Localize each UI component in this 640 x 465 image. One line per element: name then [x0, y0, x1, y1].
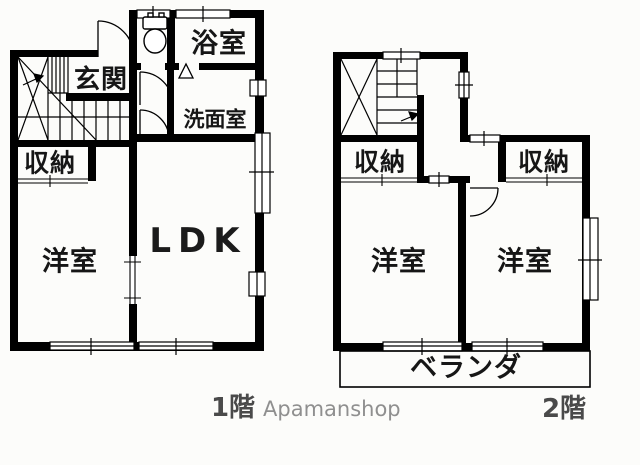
- f2-wall-mid-c: [500, 135, 590, 142]
- stairs-down-arrow-head: [409, 112, 418, 120]
- watermark-apamanshop: Apamanshop: [263, 399, 401, 420]
- caption-floor1: 1階: [211, 395, 255, 421]
- toilet-tank-knob: [159, 13, 164, 17]
- toilet-bowl: [144, 29, 166, 53]
- f1-wall-ldk-top: [129, 134, 263, 142]
- f2-wall-stairs-hall: [417, 95, 424, 180]
- label-bathroom: 浴室: [191, 31, 247, 58]
- f2-wall-mid-b: [460, 135, 470, 142]
- label-bedroom-f2-right: 洋室: [497, 249, 553, 276]
- caption-floor2: 2階: [542, 396, 586, 422]
- f2-wall-top-a: [333, 52, 383, 59]
- stairs-up-arrow-head: [34, 74, 43, 82]
- toilet-tank: [143, 17, 167, 29]
- floor2-stairs: [341, 59, 418, 135]
- f1-wall-top-left: [10, 50, 98, 57]
- f2-wall-upper-right-a: [460, 52, 468, 72]
- f1-wall-left: [10, 50, 18, 351]
- floor1-toilet-icon: [143, 13, 167, 53]
- floorplan-canvas: 玄関 浴室 洗面室 収納 洋室 LDK 収納 収納 洋室 洋室 ベランダ 1階 …: [0, 0, 640, 465]
- f1-wall-ldk-bedroom-a: [129, 142, 137, 258]
- f1-wall-bath-bottom: [199, 63, 263, 70]
- front-door-arc: [98, 21, 134, 57]
- f1-wall-storage-right: [88, 147, 96, 181]
- label-storage-f2-left: 収納: [354, 150, 406, 175]
- label-washroom: 洗面室: [184, 110, 247, 131]
- f2-wall-storageR-left: [498, 142, 506, 182]
- floor1-sliding-doors: [14, 175, 141, 304]
- bath-door-mark: [179, 64, 193, 78]
- f2-wall-room-divider: [458, 182, 466, 343]
- toilet-tank-knob: [148, 13, 153, 17]
- label-storage-f2-right: 収納: [518, 150, 570, 175]
- label-ldk: LDK: [149, 224, 246, 258]
- label-veranda: ベランダ: [410, 355, 522, 382]
- f2-wall-left: [333, 52, 341, 351]
- label-bedroom-f2-left: 洋室: [371, 249, 427, 276]
- f2-wall-mid-a: [333, 135, 424, 142]
- label-entrance: 玄関: [74, 67, 128, 93]
- f1-wall-toilet-bottom-a: [129, 63, 141, 70]
- f2-window-hall: [470, 135, 500, 142]
- label-bedroom-f1: 洋室: [42, 249, 98, 276]
- f2-hall-door-arc: [470, 188, 498, 216]
- f1-wall-storage-top: [10, 140, 137, 147]
- f1-wall-ldk-bedroom-b: [129, 302, 137, 344]
- floor2-doors: [470, 188, 498, 216]
- f1-wall-hall-left: [129, 10, 137, 142]
- label-storage-f1: 収納: [24, 151, 76, 176]
- floor2-windows: [383, 48, 602, 355]
